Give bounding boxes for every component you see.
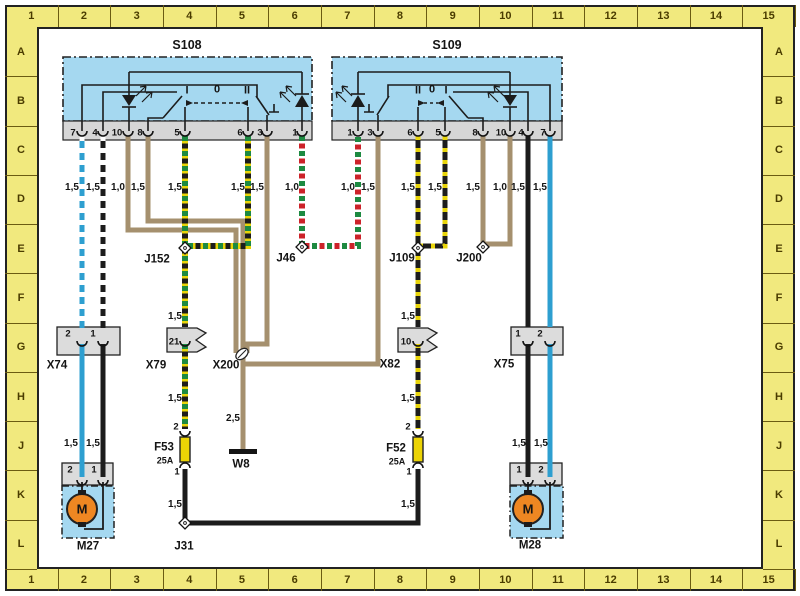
w8-ground-icon (229, 449, 257, 454)
terminal-arc-icon (180, 431, 190, 436)
wire-segment-bky (420, 136, 445, 246)
wire-segment-gnr (302, 136, 358, 246)
wire-segment-bk (185, 469, 418, 523)
component-boxes (57, 57, 563, 538)
wire-segment-bky (420, 136, 445, 246)
m28-motor-icon (513, 494, 543, 524)
wiring-diagram-canvas (0, 0, 800, 596)
wires-layer (82, 136, 550, 523)
terminal-arc-icon (413, 463, 423, 468)
junction-diamond-icon (179, 517, 191, 529)
wire-segment-gnr (302, 136, 358, 246)
f53-fuse (180, 437, 190, 462)
terminal-arc-icon (180, 463, 190, 468)
wire-segment-gnr (302, 136, 358, 246)
wire-segment-br (485, 136, 510, 244)
junction-diamond-icon (296, 241, 308, 253)
m27-motor-icon (67, 494, 97, 524)
wiring-diagram-page: 1234567891011121314151234567891011121314… (0, 0, 800, 596)
terminal-arc-icon (413, 431, 423, 436)
x74-connector (57, 327, 120, 355)
f52-fuse (413, 437, 423, 462)
junction-layer (179, 241, 489, 529)
